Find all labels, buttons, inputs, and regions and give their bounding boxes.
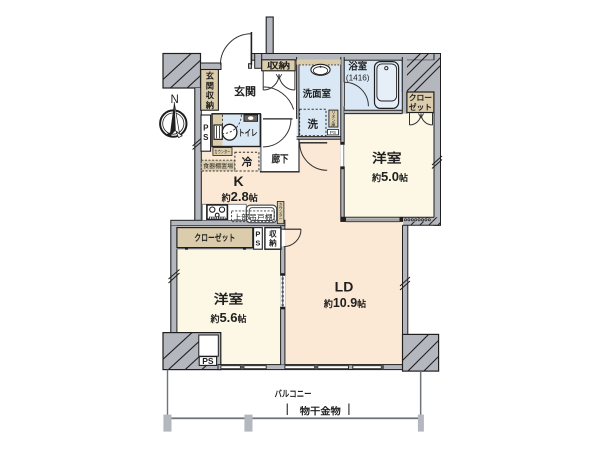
svg-text:洋室: 洋室 [214, 289, 244, 308]
svg-text:S: S [255, 238, 260, 249]
svg-text:PS: PS [330, 130, 336, 136]
svg-text:食器棚置場: 食器棚置場 [203, 162, 234, 170]
svg-text:冷: 冷 [242, 155, 253, 170]
svg-text:納: 納 [268, 238, 277, 249]
svg-text:クローゼット: クローゼット [194, 230, 235, 244]
svg-text:玄関: 玄関 [234, 83, 256, 99]
svg-text:ゼット: ゼット [409, 102, 432, 113]
svg-text:洗: 洗 [308, 116, 319, 131]
svg-text:ー: ー [279, 217, 283, 222]
svg-text:S: S [203, 132, 209, 143]
svg-text:洋室: 洋室 [372, 147, 402, 166]
svg-text:カウンター: カウンター [214, 148, 230, 155]
svg-text:納: 納 [205, 99, 214, 111]
svg-text:トイレ: トイレ [238, 126, 257, 139]
svg-text:洗面室: 洗面室 [303, 86, 332, 100]
svg-text:廊下: 廊下 [272, 150, 289, 165]
svg-text:収納: 収納 [267, 59, 291, 71]
svg-text:(1416): (1416) [346, 72, 370, 84]
svg-text:庫: 庫 [331, 121, 335, 128]
svg-text:上部吊戸棚: 上部吊戸棚 [234, 212, 273, 222]
svg-text:物干金物: 物干金物 [300, 403, 342, 417]
svg-text:バルコニー: バルコニー [275, 387, 312, 400]
svg-text:PS: PS [202, 355, 214, 367]
